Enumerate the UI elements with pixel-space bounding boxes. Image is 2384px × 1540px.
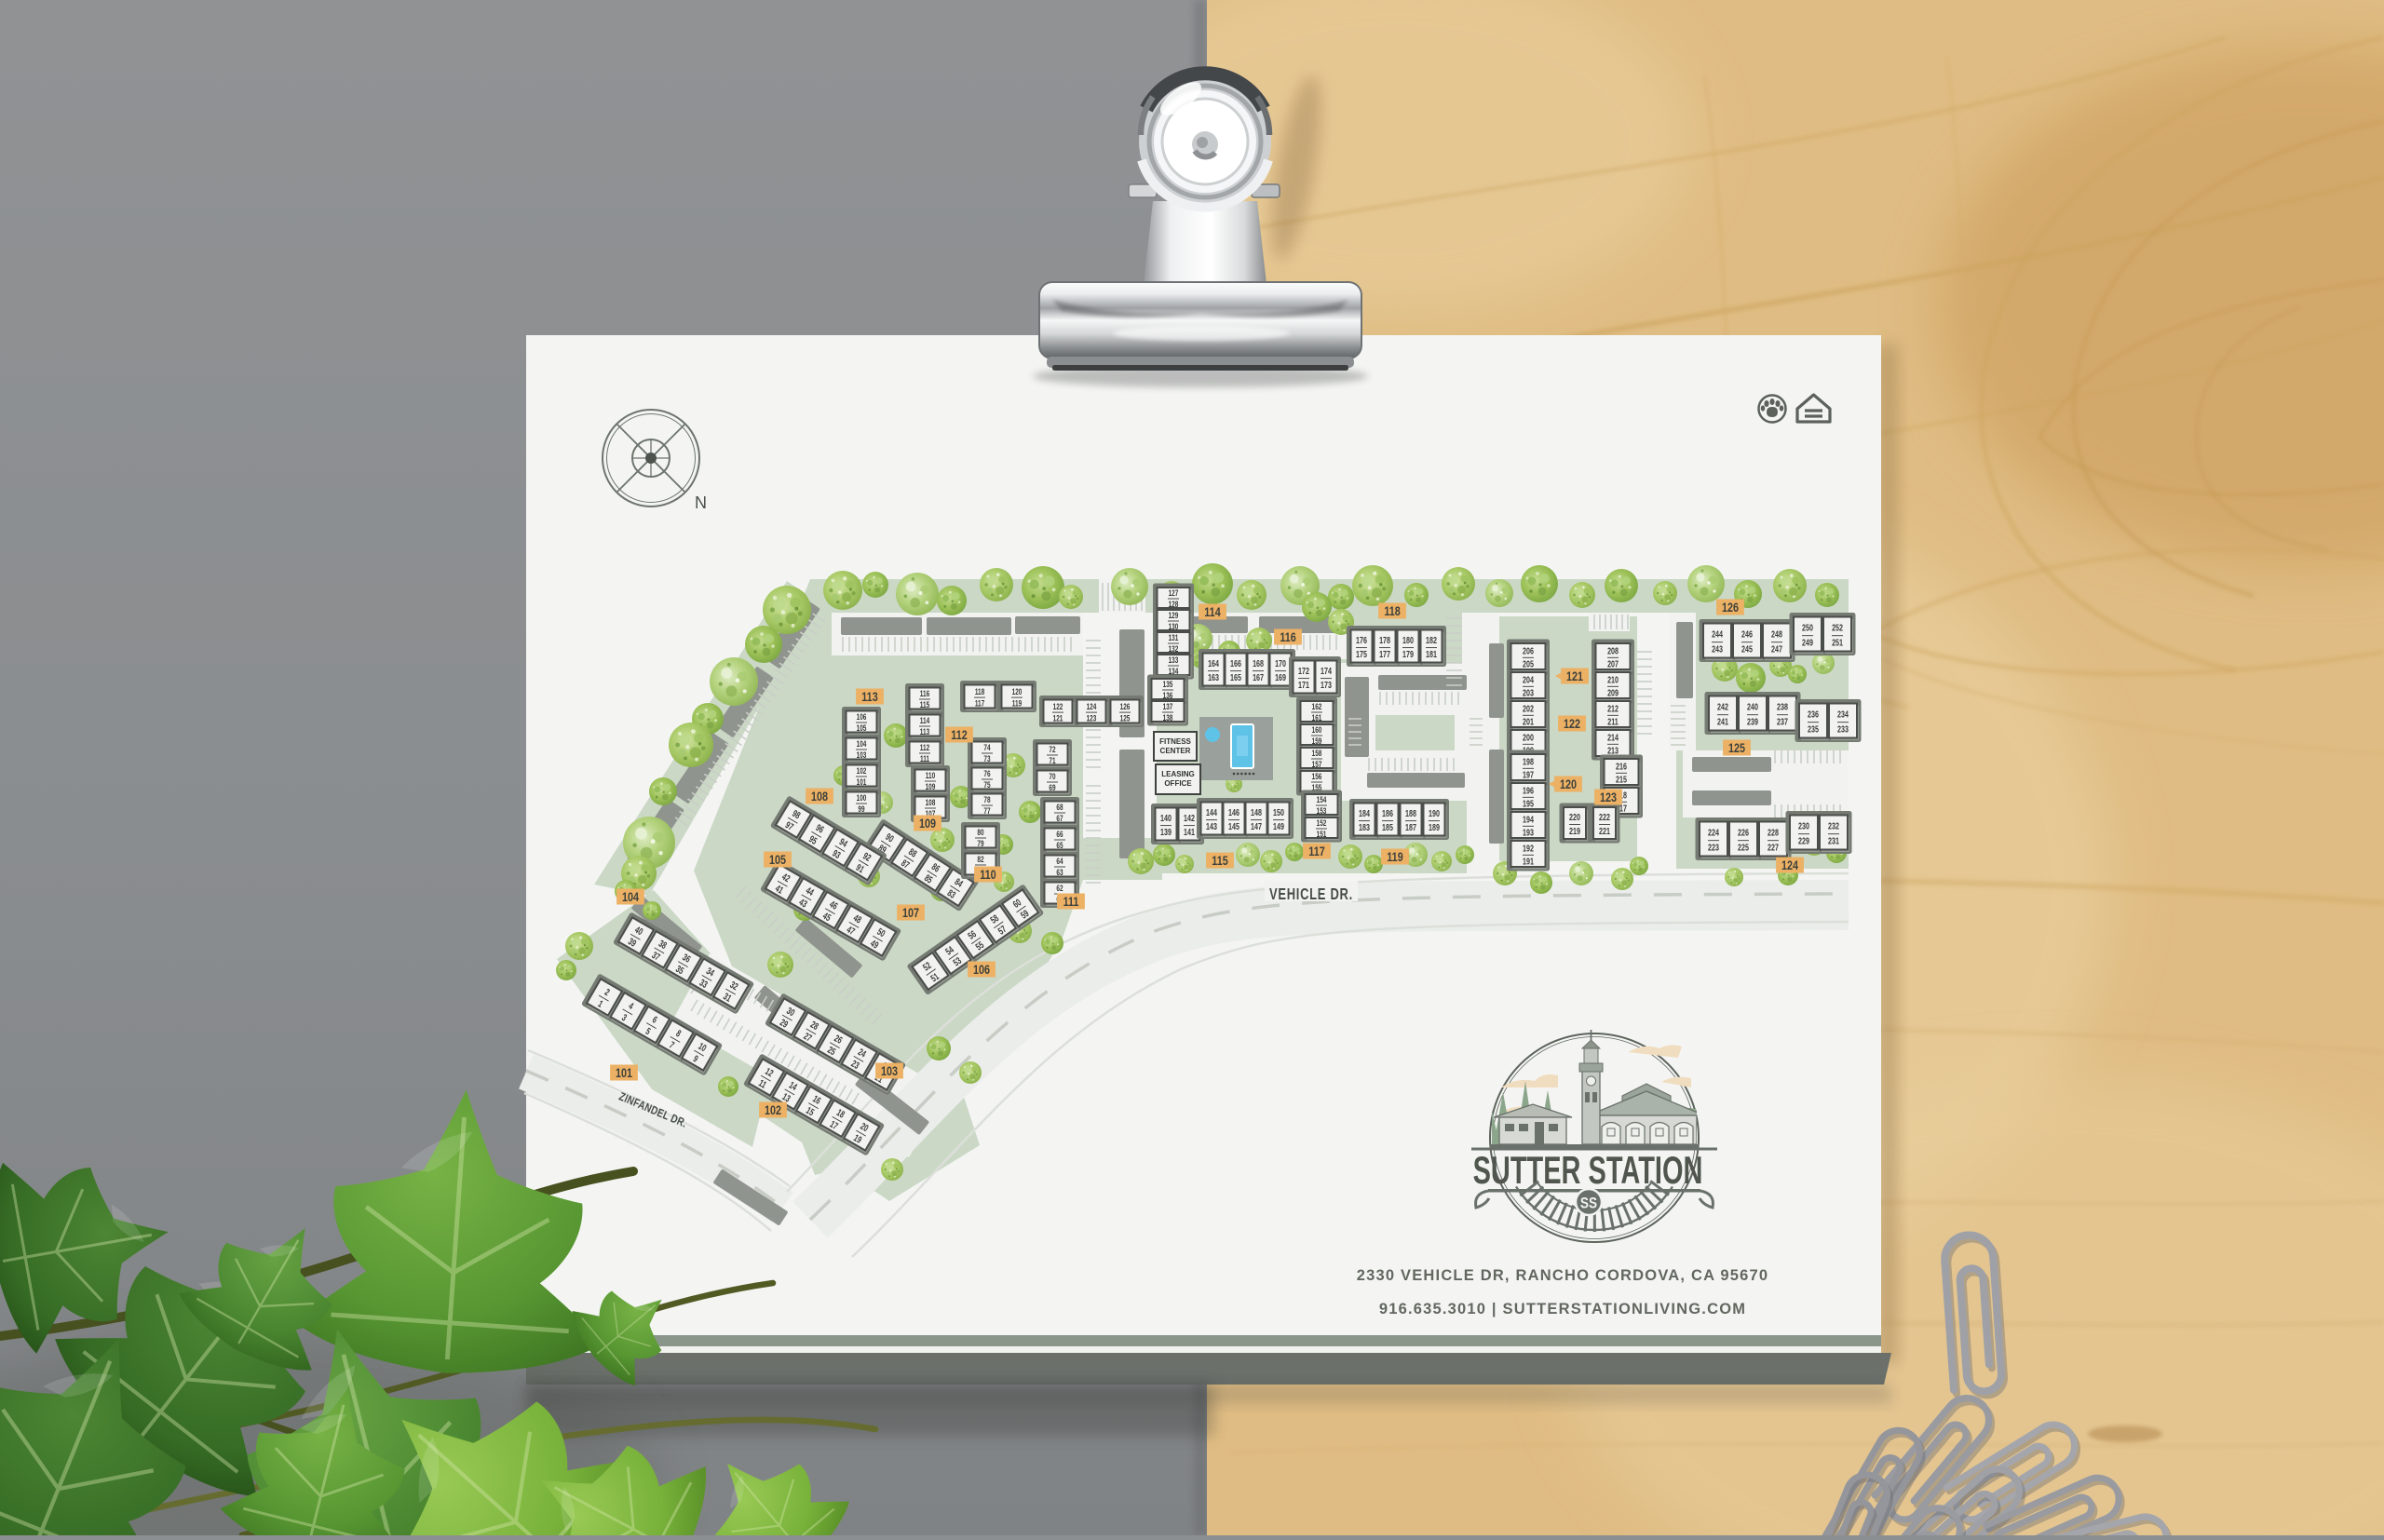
svg-text:110: 110: [926, 771, 936, 781]
svg-text:246: 246: [1741, 628, 1753, 640]
svg-text:76: 76: [983, 769, 991, 779]
svg-text:233: 233: [1837, 723, 1849, 735]
svg-text:117: 117: [975, 698, 985, 709]
svg-text:104: 104: [857, 739, 867, 750]
svg-text:109: 109: [919, 817, 936, 831]
svg-text:152: 152: [1317, 818, 1327, 829]
svg-text:236: 236: [1808, 709, 1819, 720]
svg-text:220: 220: [1569, 812, 1580, 823]
svg-text:205: 205: [1523, 658, 1534, 669]
svg-text:216: 216: [1616, 761, 1627, 772]
svg-text:157: 157: [1312, 760, 1322, 770]
svg-text:186: 186: [1382, 808, 1393, 819]
svg-text:101: 101: [857, 777, 867, 788]
svg-text:173: 173: [1321, 680, 1332, 691]
svg-text:146: 146: [1228, 807, 1239, 818]
svg-text:194: 194: [1523, 814, 1534, 825]
svg-text:111: 111: [920, 754, 929, 764]
svg-text:163: 163: [1208, 672, 1219, 683]
svg-text:235: 235: [1808, 723, 1819, 735]
svg-text:161: 161: [1312, 713, 1322, 723]
svg-text:214: 214: [1607, 732, 1619, 743]
svg-text:82: 82: [977, 855, 984, 865]
svg-text:176: 176: [1356, 635, 1367, 646]
svg-text:LEASING: LEASING: [1161, 770, 1195, 778]
svg-text:148: 148: [1251, 807, 1262, 818]
svg-text:211: 211: [1607, 716, 1619, 727]
svg-text:227: 227: [1768, 842, 1779, 853]
svg-text:115: 115: [1212, 854, 1228, 868]
svg-text:225: 225: [1738, 842, 1749, 853]
svg-text:80: 80: [977, 828, 984, 838]
svg-text:136: 136: [1163, 691, 1173, 701]
svg-text:104: 104: [622, 890, 639, 904]
svg-text:189: 189: [1429, 822, 1440, 833]
svg-text:68: 68: [1056, 803, 1063, 813]
svg-text:244: 244: [1712, 628, 1723, 640]
svg-text:107: 107: [902, 906, 919, 920]
svg-text:105: 105: [857, 723, 867, 734]
svg-text:70: 70: [1049, 772, 1056, 782]
svg-text:126: 126: [1722, 601, 1739, 615]
svg-text:169: 169: [1275, 672, 1286, 683]
svg-text:100: 100: [857, 793, 867, 804]
svg-text:126: 126: [1120, 702, 1131, 712]
svg-text:165: 165: [1230, 672, 1241, 683]
svg-text:208: 208: [1607, 645, 1619, 656]
svg-text:240: 240: [1747, 701, 1758, 712]
svg-text:170: 170: [1275, 658, 1286, 669]
svg-text:250: 250: [1802, 622, 1813, 633]
svg-text:179: 179: [1402, 649, 1414, 660]
svg-text:115: 115: [920, 700, 930, 710]
svg-text:167: 167: [1253, 672, 1264, 683]
svg-text:141: 141: [1184, 827, 1195, 838]
svg-text:122: 122: [1564, 717, 1580, 731]
svg-text:138: 138: [1163, 713, 1173, 723]
svg-text:159: 159: [1312, 736, 1322, 747]
svg-text:187: 187: [1405, 822, 1416, 833]
svg-text:109: 109: [926, 782, 936, 792]
svg-text:174: 174: [1321, 666, 1332, 677]
svg-text:207: 207: [1607, 658, 1619, 669]
svg-text:151: 151: [1317, 830, 1327, 840]
svg-text:180: 180: [1402, 635, 1414, 646]
svg-text:118: 118: [1384, 604, 1401, 618]
svg-text:206: 206: [1523, 645, 1534, 656]
svg-text:232: 232: [1828, 820, 1839, 831]
svg-text:75: 75: [983, 780, 991, 790]
svg-text:201: 201: [1523, 716, 1534, 727]
svg-text:213: 213: [1607, 745, 1619, 756]
svg-text:130: 130: [1169, 622, 1179, 632]
svg-text:195: 195: [1523, 798, 1534, 809]
svg-text:120: 120: [1012, 687, 1023, 697]
svg-text:230: 230: [1798, 820, 1809, 831]
svg-text:156: 156: [1312, 772, 1322, 782]
svg-text:103: 103: [881, 1064, 898, 1078]
svg-text:166: 166: [1230, 658, 1241, 669]
svg-text:112: 112: [920, 743, 930, 753]
svg-text:142: 142: [1184, 813, 1195, 824]
svg-text:99: 99: [858, 804, 865, 815]
svg-text:154: 154: [1317, 795, 1327, 805]
svg-text:73: 73: [983, 754, 991, 764]
svg-text:239: 239: [1747, 716, 1758, 727]
svg-text:108: 108: [811, 790, 828, 804]
svg-text:237: 237: [1777, 716, 1788, 727]
svg-text:62: 62: [1056, 884, 1063, 894]
svg-text:111: 111: [1063, 895, 1079, 909]
svg-text:117: 117: [1308, 844, 1325, 858]
svg-text:129: 129: [1169, 611, 1179, 621]
svg-text:121: 121: [1053, 713, 1063, 723]
svg-text:N: N: [695, 493, 707, 512]
svg-text:CENTER: CENTER: [1160, 747, 1191, 755]
svg-text:203: 203: [1523, 687, 1534, 698]
svg-text:64: 64: [1056, 857, 1063, 867]
svg-text:231: 231: [1828, 835, 1839, 846]
svg-text:105: 105: [769, 853, 786, 867]
svg-text:147: 147: [1251, 821, 1262, 832]
svg-text:224: 224: [1708, 827, 1719, 838]
svg-text:127: 127: [1169, 588, 1179, 599]
svg-text:118: 118: [975, 687, 985, 697]
svg-text:222: 222: [1599, 812, 1610, 823]
svg-text:74: 74: [983, 743, 991, 753]
svg-text:144: 144: [1206, 807, 1217, 818]
svg-text:219: 219: [1569, 826, 1580, 837]
svg-text:106: 106: [973, 963, 990, 977]
svg-text:119: 119: [1387, 850, 1403, 864]
svg-text:242: 242: [1717, 701, 1728, 712]
svg-text:139: 139: [1160, 827, 1172, 838]
svg-text:183: 183: [1359, 822, 1370, 833]
svg-text:223: 223: [1708, 842, 1719, 853]
svg-text:121: 121: [1566, 669, 1583, 683]
svg-text:247: 247: [1771, 643, 1782, 655]
svg-text:172: 172: [1298, 666, 1309, 677]
svg-text:125: 125: [1728, 741, 1745, 755]
svg-text:101: 101: [616, 1066, 632, 1080]
svg-text:150: 150: [1273, 807, 1284, 818]
svg-text:103: 103: [857, 750, 867, 761]
svg-text:69: 69: [1049, 783, 1056, 793]
svg-text:132: 132: [1169, 644, 1179, 655]
svg-text:124: 124: [1087, 702, 1097, 712]
svg-text:OFFICE: OFFICE: [1164, 779, 1192, 788]
svg-text:79: 79: [977, 839, 984, 849]
svg-text:188: 188: [1405, 808, 1416, 819]
svg-text:229: 229: [1798, 835, 1809, 846]
svg-text:243: 243: [1712, 643, 1723, 655]
svg-text:131: 131: [1169, 633, 1179, 643]
svg-text:178: 178: [1379, 635, 1390, 646]
svg-text:133: 133: [1169, 655, 1179, 666]
svg-text:102: 102: [857, 766, 867, 777]
svg-text:66: 66: [1056, 830, 1063, 840]
svg-text:116: 116: [920, 689, 930, 699]
svg-text:SS: SS: [1580, 1195, 1597, 1212]
svg-text:248: 248: [1771, 628, 1782, 640]
svg-text:122: 122: [1053, 702, 1063, 712]
svg-text:123: 123: [1087, 713, 1097, 723]
svg-text:210: 210: [1607, 674, 1619, 685]
svg-text:78: 78: [983, 795, 991, 805]
svg-text:153: 153: [1317, 806, 1327, 817]
svg-text:71: 71: [1049, 756, 1056, 766]
svg-text:145: 145: [1228, 821, 1239, 832]
svg-text:112: 112: [951, 728, 968, 742]
svg-text:124: 124: [1781, 858, 1798, 872]
svg-text:181: 181: [1426, 649, 1437, 660]
svg-text:65: 65: [1056, 841, 1063, 851]
svg-text:202: 202: [1523, 703, 1534, 714]
svg-text:226: 226: [1738, 827, 1749, 838]
svg-text:204: 204: [1523, 674, 1534, 685]
svg-text:196: 196: [1523, 785, 1534, 796]
svg-text:190: 190: [1429, 808, 1440, 819]
svg-text:SUTTER STATION: SUTTER STATION: [1473, 1148, 1703, 1193]
svg-text:128: 128: [1169, 600, 1179, 610]
svg-text:249: 249: [1802, 637, 1813, 648]
svg-text:143: 143: [1206, 821, 1217, 832]
svg-text:125: 125: [1120, 713, 1131, 723]
svg-text:162: 162: [1312, 702, 1322, 712]
svg-text:182: 182: [1426, 635, 1437, 646]
svg-text:135: 135: [1163, 680, 1173, 690]
svg-text:108: 108: [926, 798, 936, 808]
svg-text:113: 113: [861, 690, 878, 704]
svg-text:67: 67: [1056, 814, 1063, 824]
svg-text:149: 149: [1273, 821, 1284, 832]
svg-text:197: 197: [1523, 769, 1534, 780]
svg-text:198: 198: [1523, 756, 1534, 767]
svg-text:119: 119: [1012, 698, 1023, 709]
svg-text:164: 164: [1208, 658, 1219, 669]
svg-text:215: 215: [1616, 774, 1627, 785]
svg-text:140: 140: [1160, 813, 1172, 824]
svg-text:245: 245: [1741, 643, 1753, 655]
svg-text:137: 137: [1163, 702, 1173, 712]
svg-text:177: 177: [1379, 649, 1390, 660]
svg-text:234: 234: [1837, 709, 1849, 720]
svg-text:160: 160: [1312, 725, 1322, 736]
svg-text:110: 110: [980, 868, 996, 882]
svg-text:185: 185: [1382, 822, 1393, 833]
svg-text:72: 72: [1049, 745, 1056, 755]
svg-text:916.635.3010 | SUTTERSTATIONLI: 916.635.3010 | SUTTERSTATIONLIVING.COM: [1379, 1301, 1746, 1317]
svg-text:221: 221: [1599, 826, 1610, 837]
svg-text:200: 200: [1523, 732, 1534, 743]
svg-text:175: 175: [1356, 649, 1367, 660]
svg-text:FITNESS: FITNESS: [1159, 737, 1191, 746]
svg-text:241: 241: [1717, 716, 1728, 727]
svg-text:191: 191: [1523, 856, 1534, 867]
svg-text:116: 116: [1280, 630, 1296, 644]
svg-text:123: 123: [1600, 790, 1617, 804]
svg-text:168: 168: [1253, 658, 1264, 669]
svg-text:114: 114: [1204, 605, 1221, 619]
svg-text:2330 VEHICLE DR, RANCHO CORDOV: 2330 VEHICLE DR, RANCHO CORDOVA, CA 9567…: [1357, 1267, 1769, 1284]
svg-text:113: 113: [920, 727, 930, 737]
svg-text:212: 212: [1607, 703, 1619, 714]
svg-text:251: 251: [1832, 637, 1843, 648]
svg-text:VEHICLE DR.: VEHICLE DR.: [1269, 885, 1353, 904]
svg-text:158: 158: [1312, 749, 1322, 759]
svg-text:193: 193: [1523, 827, 1534, 838]
svg-text:102: 102: [765, 1103, 781, 1117]
svg-text:106: 106: [857, 712, 867, 723]
svg-text:171: 171: [1298, 680, 1309, 691]
svg-text:77: 77: [983, 806, 991, 817]
svg-text:192: 192: [1523, 843, 1534, 854]
svg-text:228: 228: [1768, 827, 1779, 838]
svg-text:63: 63: [1056, 868, 1063, 878]
svg-text:120: 120: [1560, 777, 1577, 791]
svg-text:184: 184: [1359, 808, 1370, 819]
svg-text:114: 114: [920, 716, 930, 726]
svg-text:238: 238: [1777, 701, 1788, 712]
svg-text:209: 209: [1607, 687, 1619, 698]
svg-text:252: 252: [1832, 622, 1843, 633]
